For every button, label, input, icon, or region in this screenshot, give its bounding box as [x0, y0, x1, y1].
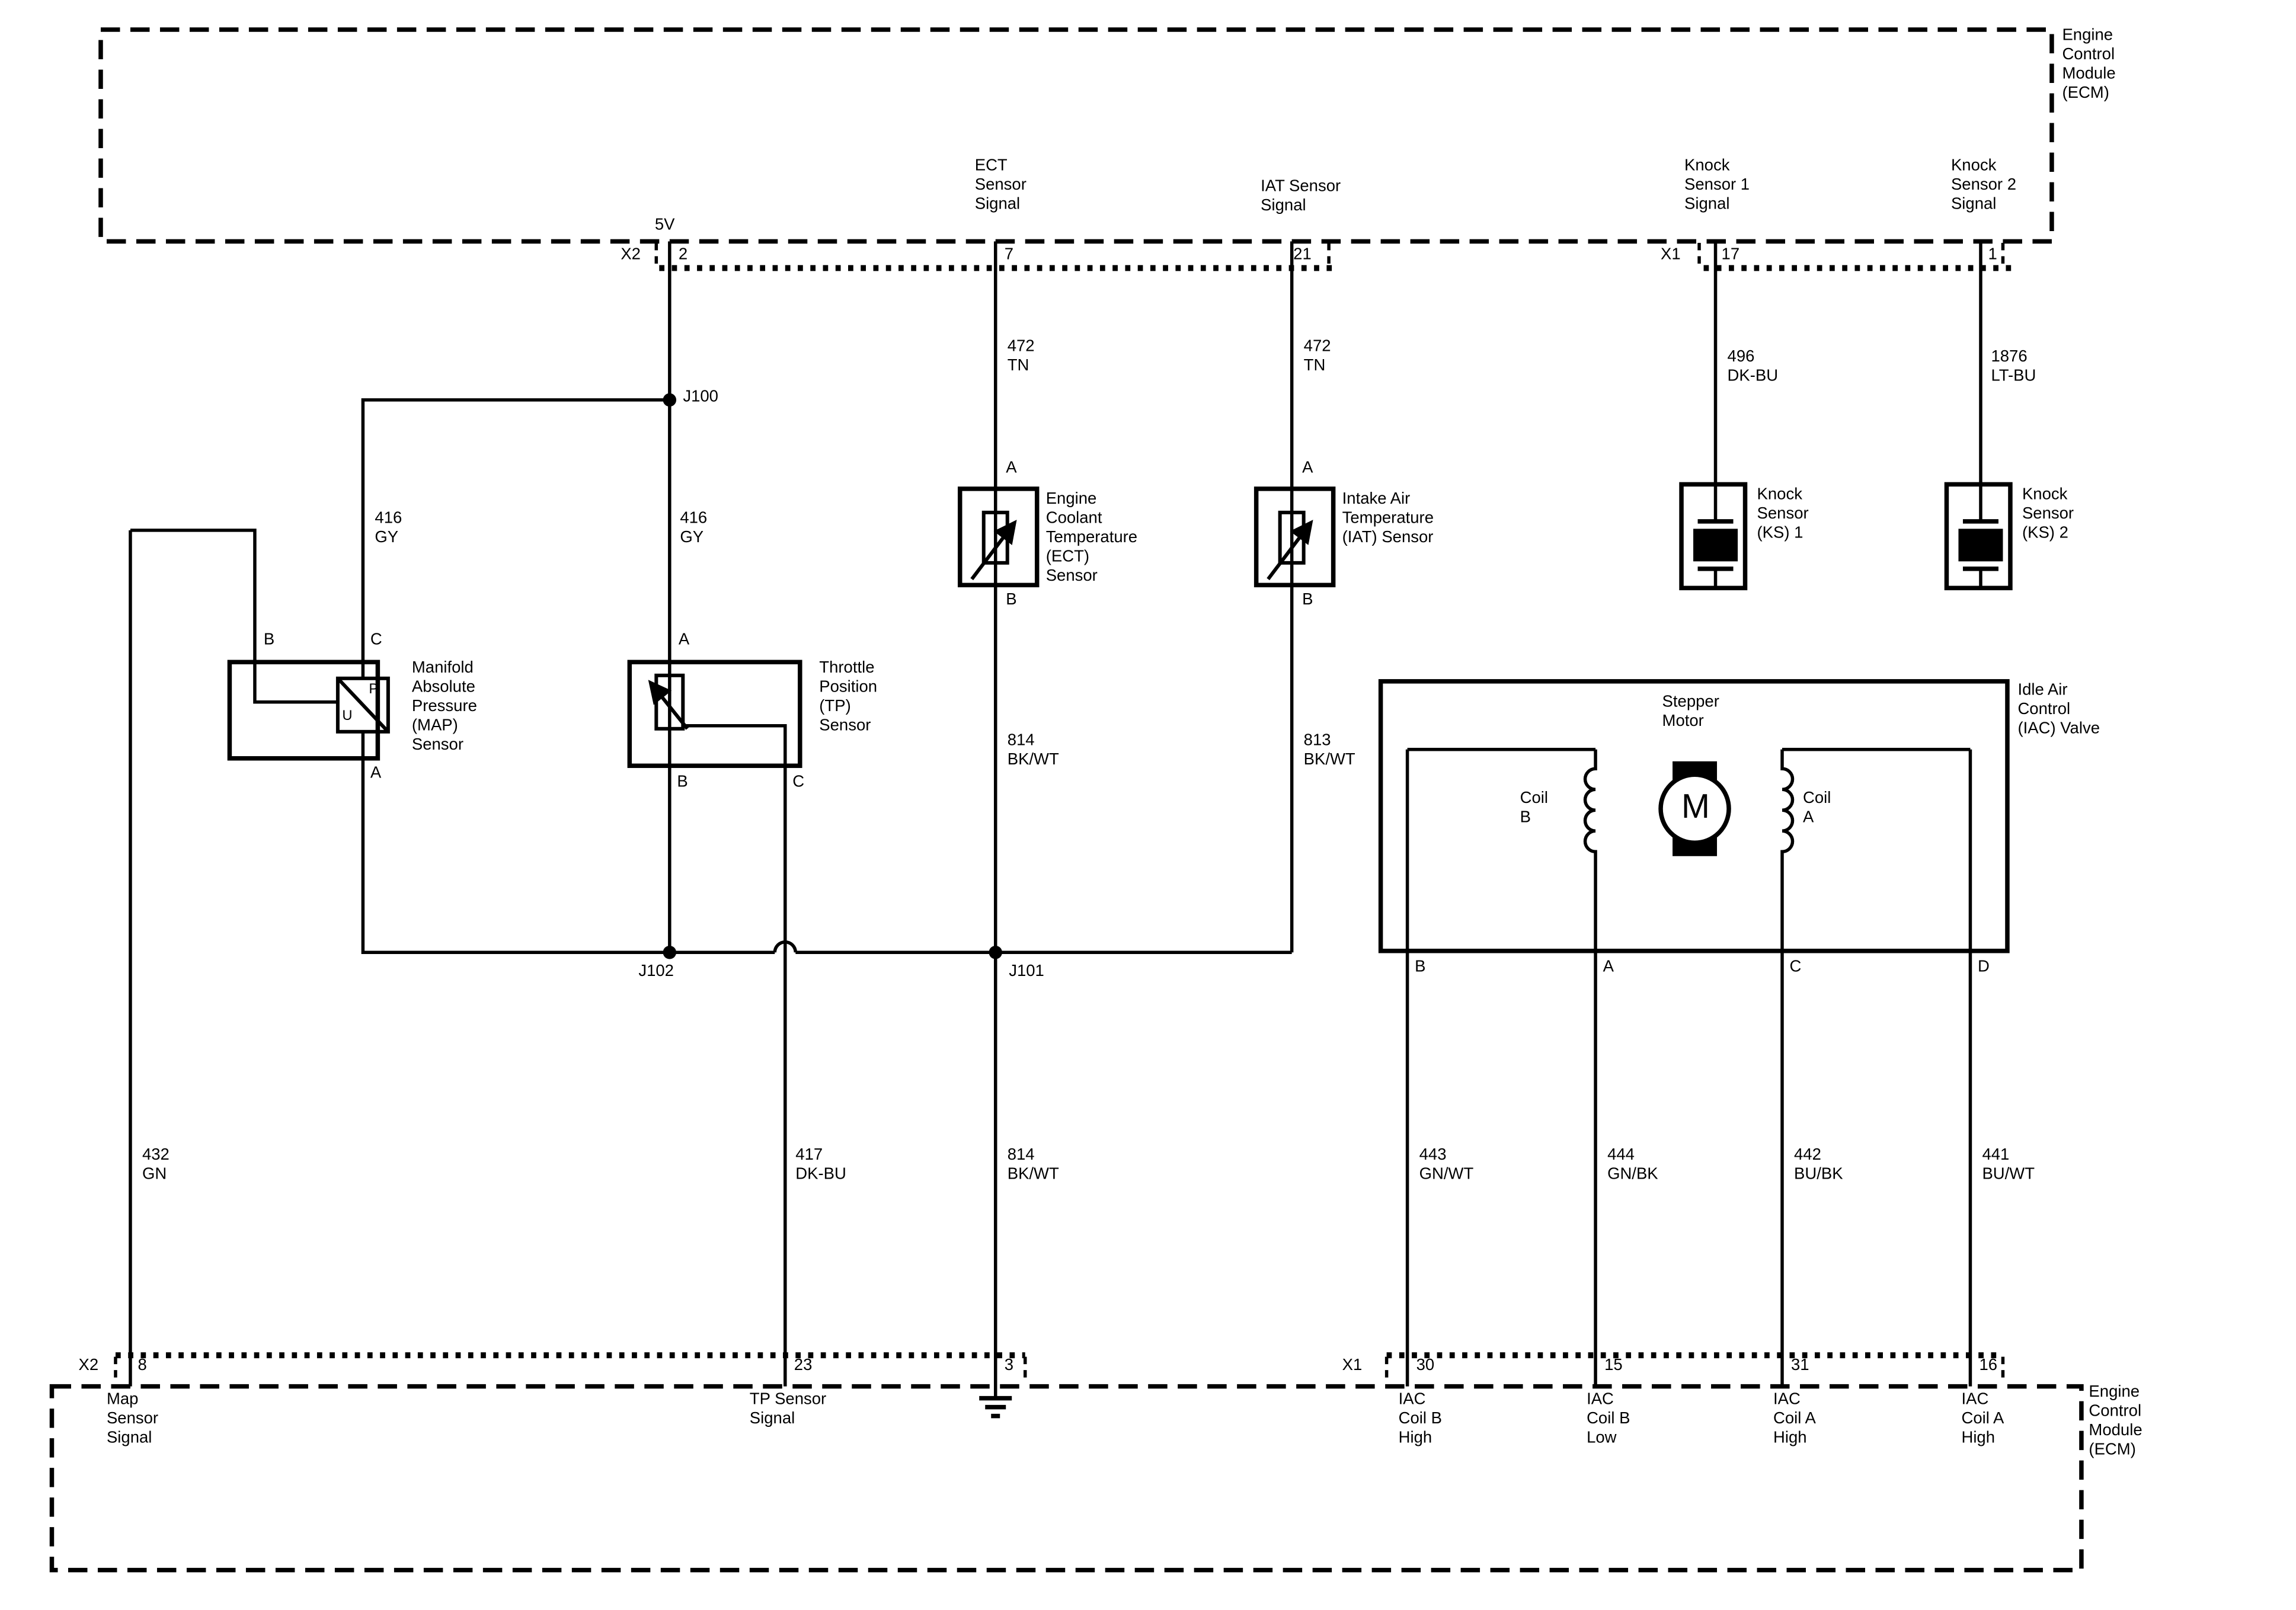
- tp-pin-c: C: [792, 773, 804, 792]
- ect-pin-b: B: [1006, 591, 1016, 610]
- iat-pin-a: A: [1302, 459, 1313, 478]
- pin-30: 30: [1416, 1357, 1435, 1376]
- wiring-diagram-page: Engine Control Module (ECM) 5V ECT Senso…: [0, 0, 2296, 1610]
- map-symbol-u: U: [342, 709, 352, 724]
- wire-label-443: 443 GN/WT: [1419, 1147, 1474, 1185]
- ect-pin-a: A: [1006, 459, 1016, 478]
- wire-label-442: 442 BU/BK: [1794, 1147, 1843, 1185]
- map-sensor-box: [229, 662, 378, 758]
- iac-pin-d: D: [1978, 958, 1990, 977]
- wire-label-813: 813 BK/WT: [1304, 732, 1355, 770]
- ks2-element: [1958, 529, 2003, 561]
- wire-442-coil-a-high: [1782, 750, 1792, 1387]
- wire-label-472-iat: 472 TN: [1304, 338, 1331, 376]
- wire-5v-map-branch: [363, 400, 669, 662]
- iac-motor-m: M: [1681, 789, 1710, 823]
- wire-label-496: 496 DK-BU: [1728, 348, 1779, 386]
- iac-pin-a: A: [1603, 958, 1614, 977]
- wire-label-432: 432 GN: [142, 1147, 170, 1185]
- diagram-art: [0, 0, 2296, 1610]
- ecm-top-label: Engine Control Module (ECM): [2062, 27, 2115, 104]
- junction-j100: J100: [683, 388, 718, 407]
- pin-15: 15: [1604, 1357, 1623, 1376]
- signal-map-bottom: Map Sensor Signal: [107, 1391, 158, 1448]
- connector-x1-top: X1: [1661, 246, 1681, 265]
- wire-label-416-tp: 416 GY: [680, 510, 707, 548]
- map-sensor-label: Manifold Absolute Pressure (MAP) Sensor: [412, 659, 477, 755]
- pin-3: 3: [1005, 1357, 1013, 1376]
- pin-17: 17: [1722, 246, 1740, 265]
- wire-label-1876: 1876 LT-BU: [1991, 348, 2036, 386]
- ect-sensor-label: Engine Coolant Temperature (ECT) Sensor: [1046, 490, 1137, 586]
- wire-444-coil-b-low: [1585, 750, 1595, 1387]
- ks1-label: Knock Sensor (KS) 1: [1757, 486, 1809, 543]
- map-pin-b: B: [264, 631, 274, 650]
- iat-sensor-box: [1256, 489, 1334, 585]
- map-pin-c: C: [370, 631, 382, 650]
- iac-valve-label: Idle Air Control (IAC) Valve: [2017, 681, 2100, 739]
- junction-j100-dot: [663, 393, 676, 406]
- wire-label-417: 417 DK-BU: [795, 1147, 846, 1185]
- wire-map-b-internal: [130, 530, 338, 702]
- signal-ect: ECT Sensor Signal: [975, 157, 1027, 215]
- pin-7: 7: [1005, 246, 1013, 265]
- signal-ks1: Knock Sensor 1 Signal: [1684, 157, 1750, 215]
- connector-x1-bottom: X1: [1342, 1357, 1363, 1376]
- junction-j101: J101: [1009, 963, 1044, 982]
- signal-tp-bottom: TP Sensor Signal: [750, 1391, 826, 1429]
- iac-coil-b-label: Coil B: [1520, 789, 1548, 828]
- wire-label-472-ect: 472 TN: [1008, 338, 1035, 376]
- junction-j102-dot: [663, 946, 676, 959]
- signal-iac-b-low: IAC Coil B Low: [1587, 1391, 1630, 1448]
- iac-stepper-label: Stepper Motor: [1662, 693, 1719, 732]
- pin-1: 1: [1988, 246, 1997, 265]
- pin-21: 21: [1293, 246, 1312, 265]
- map-symbol-p: P: [369, 683, 378, 697]
- signal-ks2: Knock Sensor 2 Signal: [1951, 157, 2016, 215]
- pin-16: 16: [1979, 1357, 1997, 1376]
- wire-label-416-map: 416 GY: [375, 510, 402, 548]
- wire-label-444: 444 GN/BK: [1607, 1147, 1658, 1185]
- ecm-bottom-label: Engine Control Module (ECM): [2089, 1384, 2142, 1461]
- ecm-top-box: [101, 30, 2052, 241]
- connector-x2-top: X2: [621, 246, 641, 265]
- wire-417-tp-signal: [685, 726, 785, 1387]
- signal-iac-b-high: IAC Coil B High: [1399, 1391, 1442, 1448]
- tp-pin-b: B: [677, 773, 687, 792]
- pin-8: 8: [137, 1357, 146, 1376]
- iac-pin-c: C: [1790, 958, 1802, 977]
- iac-pin-b: B: [1415, 958, 1425, 977]
- iat-sensor-label: Intake Air Temperature (IAT) Sensor: [1342, 490, 1434, 548]
- tp-sensor-label: Throttle Position (TP) Sensor: [819, 659, 877, 736]
- wire-label-814-upper: 814 BK/WT: [1008, 732, 1059, 770]
- ks1-element: [1693, 529, 1738, 561]
- signal-5v: 5V: [655, 216, 675, 235]
- ect-sensor-box: [960, 489, 1037, 585]
- pin-31: 31: [1791, 1357, 1809, 1376]
- wire-lowref-bus-left: [363, 758, 775, 952]
- connector-x2-bottom: X2: [78, 1357, 98, 1376]
- wire-label-814-lower: 814 BK/WT: [1008, 1147, 1059, 1185]
- signal-iat: IAT Sensor Signal: [1261, 178, 1341, 216]
- pin-2: 2: [679, 246, 687, 265]
- wire-label-441: 441 BU/WT: [1982, 1147, 2035, 1185]
- map-pin-a: A: [370, 764, 381, 783]
- signal-iac-a-high-2: IAC Coil A High: [1961, 1391, 2004, 1448]
- iac-coil-a-label: Coil A: [1803, 789, 1831, 828]
- pin-23: 23: [794, 1357, 813, 1376]
- ks2-label: Knock Sensor (KS) 2: [2022, 486, 2074, 543]
- iat-pin-b: B: [1302, 591, 1313, 610]
- signal-iac-a-high: IAC Coil A High: [1773, 1391, 1816, 1448]
- diagram-canvas: Engine Control Module (ECM) 5V ECT Senso…: [0, 0, 2296, 1610]
- junction-j102: J102: [638, 963, 674, 982]
- tp-pin-a: A: [679, 631, 689, 650]
